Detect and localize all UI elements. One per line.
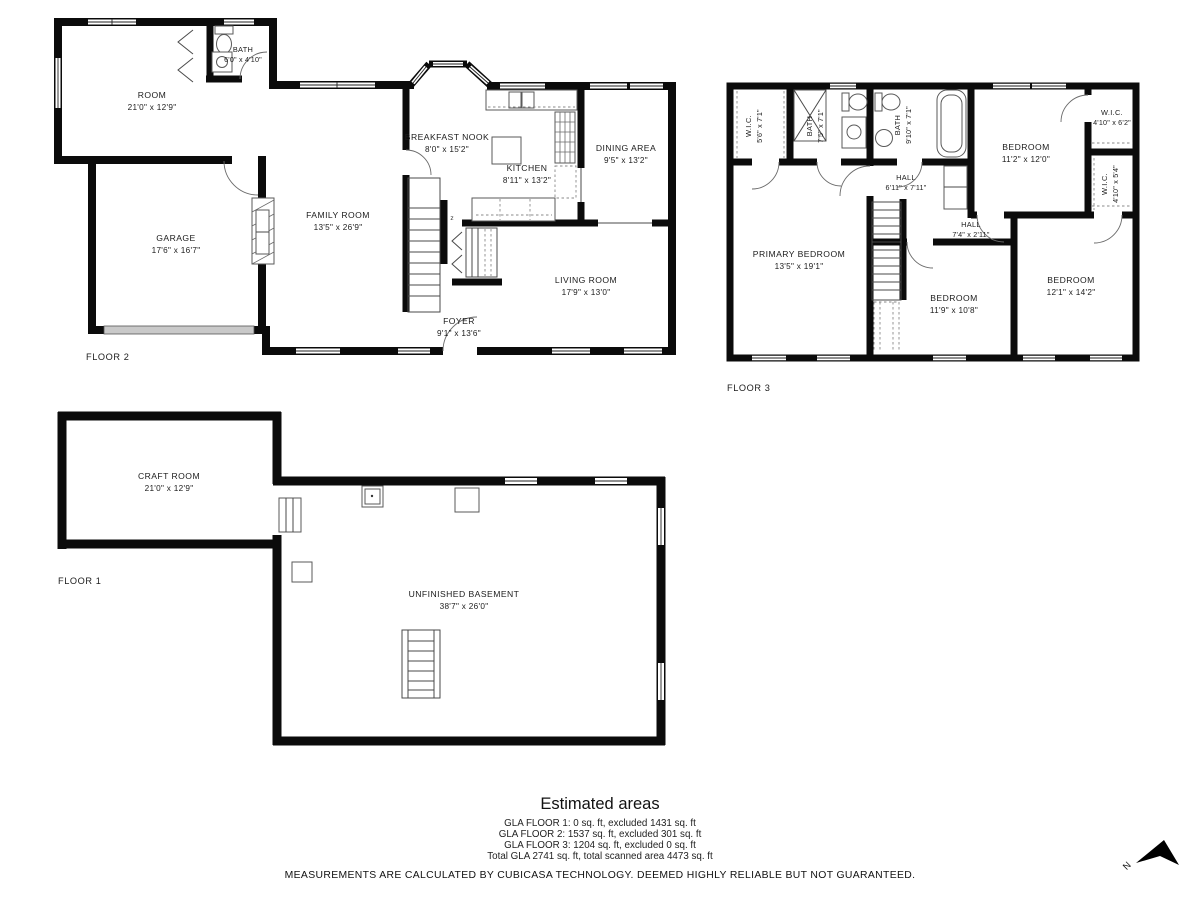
floor-1-stairs [402, 630, 440, 698]
living-room-dims: 17'9" x 13'0" [562, 288, 611, 297]
wic-left-label: W.I.C. [744, 115, 753, 137]
bath1-door-arc [817, 162, 841, 186]
floorplan-page: ROOM 21'0" x 12'9" BATH 6'0" x 4'10" GAR… [0, 0, 1200, 900]
garage-dims: 17'6" x 16'7" [152, 246, 201, 255]
living-room-label: LIVING ROOM [555, 275, 617, 285]
floorplan-drawing: ROOM 21'0" x 12'9" BATH 6'0" x 4'10" GAR… [0, 0, 1200, 900]
bath2-dims: 9'10" x 7'1" [904, 106, 913, 144]
kitchen-label: KITCHEN [507, 163, 548, 173]
bath2-label: BATH [893, 115, 902, 135]
craft-room-label: CRAFT ROOM [138, 471, 200, 481]
floor-1-walls [58, 412, 665, 745]
kitchen-dims: 8'11" x 13'2" [503, 176, 551, 185]
bedroom-top-dims: 11'2" x 12'0" [1002, 155, 1050, 164]
wic-left-door-arc [752, 162, 779, 189]
toilet2-bowl [882, 94, 900, 110]
primary-bedroom-label: PRIMARY BEDROOM [753, 249, 845, 259]
compass: N [1121, 840, 1179, 873]
floor-1-windows [505, 481, 661, 700]
fridge-outline [555, 166, 576, 198]
wic-right-door-arc [1061, 95, 1088, 122]
shelf-unit [279, 498, 301, 532]
bath-dims: 6'0" x 4'10" [224, 55, 262, 64]
toilet-tank [215, 26, 233, 34]
toilet-bowl [217, 35, 232, 54]
kitchen-lower-counter [472, 198, 555, 221]
bath-label: BATH [233, 45, 253, 54]
wic1-right-dims: 4'10" x 6'2" [1093, 118, 1131, 127]
dining-area-label: DINING AREA [596, 143, 656, 153]
niche-chevrons [452, 232, 462, 273]
hall2-label: HALL [961, 220, 981, 229]
breakfast-table [492, 137, 521, 164]
bath2-sink [876, 130, 893, 147]
craft-room-dims: 21'0" x 12'9" [145, 484, 194, 493]
primary-bedroom-dims: 13'5" x 19'1" [775, 262, 824, 271]
bedroom-right-dims: 12'1" x 14'2" [1047, 288, 1096, 297]
basement-label: UNFINISHED BASEMENT [409, 589, 520, 599]
bath1-label: BATH [805, 116, 814, 136]
estimated-areas: Estimated areas GLA FLOOR 1: 0 sq. ft, e… [487, 795, 713, 862]
floor-1-title: FLOOR 1 [58, 576, 102, 586]
gla-floor-2-line: GLA FLOOR 2: 1537 sq. ft, excluded 301 s… [499, 829, 702, 840]
chimney-box [466, 228, 497, 277]
basement-dims: 38'7" x 26'0" [440, 602, 489, 611]
garage-label: GARAGE [156, 233, 195, 243]
water-heater [455, 488, 479, 512]
bedroom-center-dims: 11'9" x 10'8" [930, 306, 978, 315]
foyer-dims: 9'1" x 13'6" [437, 329, 481, 338]
wic2-right-label: W.I.C. [1100, 173, 1109, 195]
floor-2-walls [54, 18, 676, 355]
closet-bifold-chevrons [178, 30, 193, 82]
breakfast-nook-dims: 8'0" x 15'2" [425, 145, 469, 154]
floor-3-title: FLOOR 3 [727, 383, 771, 393]
room-label: ROOM [138, 90, 167, 100]
bedroom-right-door-arc [1094, 215, 1122, 243]
toilet-tank [842, 93, 849, 111]
garage-door-band [104, 326, 254, 334]
garage-door-arc [224, 161, 258, 195]
support-post [292, 562, 312, 582]
wic-left-dims: 5'6" x 7'1" [755, 109, 764, 143]
north-label: N [1121, 860, 1134, 873]
floor-1-fixtures [279, 486, 479, 582]
floor-2-plan: ROOM 21'0" x 12'9" BATH 6'0" x 4'10" GAR… [54, 18, 676, 362]
floor-3-walls [727, 83, 1139, 361]
room-dims: 21'0" x 12'9" [128, 103, 177, 112]
gla-total-line: Total GLA 2741 sq. ft, total scanned are… [487, 851, 713, 862]
dining-area-dims: 9'5" x 13'2" [604, 156, 648, 165]
floor-3-plan: W.I.C. 5'6" x 7'1" BATH 7'5" x 7'1" BATH… [727, 83, 1139, 393]
foyer-label: FOYER [443, 316, 475, 326]
cased-openings [581, 168, 652, 223]
toilet-bowl [849, 94, 867, 110]
family-room-dims: 13'5" x 26'9" [314, 223, 363, 232]
hall-dims: 6'11" x 7'11" [886, 183, 927, 192]
estimated-areas-title: Estimated areas [540, 795, 659, 813]
bedroom-center-label: BEDROOM [930, 293, 978, 303]
wic2-right-dims: 4'10" x 5'4" [1111, 165, 1120, 203]
gla-floor-3-line: GLA FLOOR 3: 1204 sq. ft, excluded 0 sq.… [504, 840, 696, 851]
floor-1-plan: CRAFT ROOM 21'0" x 12'9" UNFINISHED BASE… [58, 412, 665, 745]
breakfast-nook-label: BREAKFAST NOOK [405, 132, 489, 142]
disclaimer-text: MEASUREMENTS ARE CALCULATED BY CUBICASA … [285, 870, 916, 881]
north-arrow-icon [1136, 840, 1179, 865]
kitchen-sink [509, 92, 521, 108]
floor-2-windows [58, 19, 663, 351]
stair-direction-marker: z [450, 215, 453, 222]
bedroom-top-label: BEDROOM [1002, 142, 1050, 152]
bedroom-right-label: BEDROOM [1047, 275, 1095, 285]
toilet2-tank [875, 93, 882, 111]
floor-3-fixtures [737, 90, 1133, 210]
wic1-right-label: W.I.C. [1101, 108, 1123, 117]
primary-bedroom-door-arc [840, 166, 870, 196]
family-room-label: FAMILY ROOM [306, 210, 370, 220]
hall2-dims: 7'4" x 2'11" [952, 230, 990, 239]
gla-floor-1-line: GLA FLOOR 1: 0 sq. ft, excluded 1431 sq.… [504, 818, 696, 829]
hall-label: HALL [896, 173, 916, 182]
floor-2-title: FLOOR 2 [86, 352, 130, 362]
floor-3-stairs [872, 202, 901, 352]
bath1-dims: 7'5" x 7'1" [816, 109, 825, 143]
hall-bedroom-door-arc [907, 242, 933, 268]
